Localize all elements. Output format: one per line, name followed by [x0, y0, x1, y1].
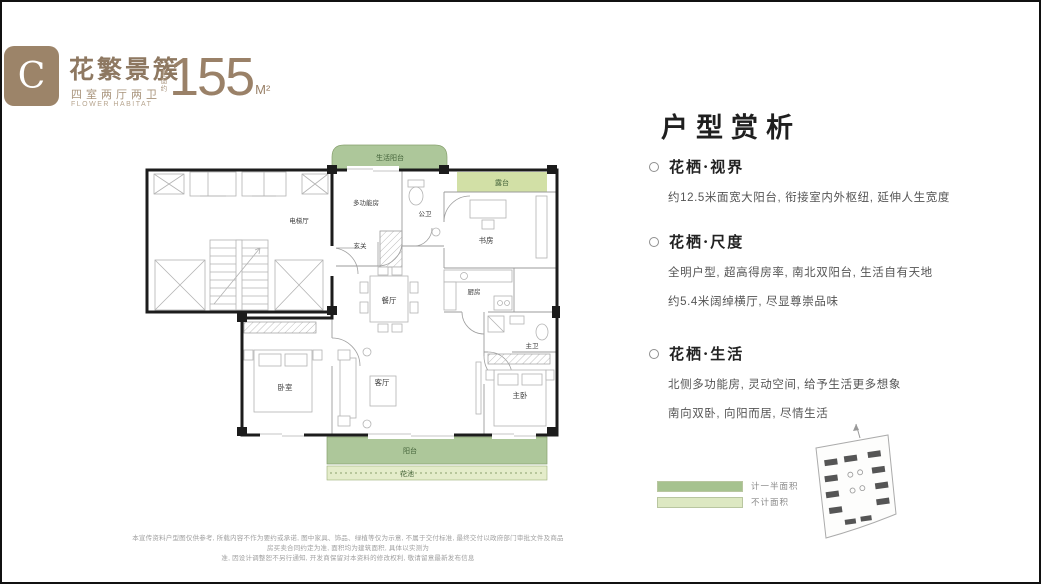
room-label-master-bedroom: 主卧: [513, 390, 528, 400]
room-label-foyer: 玄关: [354, 241, 368, 250]
unit-type-badge: C: [4, 46, 59, 106]
area-unit: M²: [255, 82, 270, 97]
area-prefix: 建面约: [157, 70, 167, 93]
poster-page: C 花繁景簇 四室两厅两卫 FLOWER HABITAT 建面约 155 M²: [0, 0, 1041, 584]
page-subtitle-en: FLOWER HABITAT: [71, 101, 152, 108]
room-label-study: 书房: [479, 235, 494, 245]
building-sitemap: [798, 422, 900, 542]
room-label-terrace: 露台: [495, 178, 509, 187]
page-subtitle: 四室两厅两卫: [71, 86, 161, 102]
legend-swatch-no-area: [657, 497, 743, 508]
room-label-dining: 餐厅: [382, 296, 397, 305]
south-balcony-area: [327, 437, 547, 480]
section-line: 约5.4米阔绰横厅, 尽显尊崇品味: [668, 293, 979, 309]
unit-type-letter: C: [18, 56, 46, 97]
section-line: 南向双卧, 向阳而居, 尽情生活: [668, 405, 979, 421]
analysis-section-scale: 花栖·尺度 全明户型, 超高得房率, 南北双阳台, 生活自有天地 约5.4米阔绰…: [649, 231, 979, 322]
section-line: 全明户型, 超高得房率, 南北双阳台, 生活自有天地: [668, 264, 979, 280]
legend-label: 不计面积: [751, 496, 789, 508]
analysis-title: 户型赏析: [661, 106, 801, 145]
section-title: 花栖·尺度: [669, 231, 744, 252]
legend-item-no-area: 不计面积: [657, 496, 799, 508]
analysis-section-vision: 花栖·视界 约12.5米面宽大阳台, 衔接室内外枢纽, 延伸人生宽度: [649, 156, 979, 218]
room-label-life-balcony: 生活阳台: [376, 153, 404, 162]
legend-label: 计一半面积: [751, 480, 799, 492]
bullet-icon: [649, 237, 659, 247]
elevator-icon: [275, 260, 323, 310]
section-title: 花栖·视界: [669, 156, 744, 177]
room-label-elevator-hall: 电梯厅: [289, 216, 309, 225]
disclaimer-line: 本宣传资料户型图仅供参考, 所载内容不作为要约或承诺, 图中家具、饰品、绿植等仅…: [132, 534, 564, 554]
floor-plan: 生活阳台 露台 多功能房 公卫 电梯厅 玄关 书房 厨房 餐厅 主卫 客厅 卧室…: [142, 136, 564, 488]
room-label-bedroom: 卧室: [278, 382, 293, 392]
elevator-icon: [155, 260, 205, 310]
area-figure: 建面约 155 M²: [157, 52, 270, 102]
analysis-section-life: 花栖·生活 北侧多功能房, 灵动空间, 给予生活更多想象 南向双卧, 向阳而居,…: [649, 343, 979, 434]
room-label-master-bath: 主卫: [526, 341, 540, 350]
north-arrow-icon: [853, 424, 860, 438]
area-legend: 计一半面积 不计面积: [657, 480, 799, 512]
disclaimer-text: 本宣传资料户型图仅供参考, 所载内容不作为要约或承诺, 图中家具、饰品、绿植等仅…: [132, 534, 564, 564]
bullet-icon: [649, 349, 659, 359]
area-value: 155: [169, 52, 253, 102]
room-label-multi-room: 多功能房: [353, 198, 379, 207]
disclaimer-line: 准, 因设计调整恕不另行通知, 开发商保留对本资料的修改权利, 敬请留意最新发布…: [132, 554, 564, 564]
bullet-icon: [649, 162, 659, 172]
room-label-flower-bed: 花池: [400, 469, 414, 478]
section-line: 北侧多功能房, 灵动空间, 给予生活更多想象: [668, 376, 979, 392]
section-line: 约12.5米面宽大阳台, 衔接室内外枢纽, 延伸人生宽度: [668, 189, 979, 205]
room-label-public-bath: 公卫: [419, 210, 433, 218]
room-label-kitchen: 厨房: [468, 287, 481, 296]
stairs-icon: [210, 240, 268, 310]
room-label-balcony: 阳台: [403, 446, 417, 455]
room-label-living: 客厅: [375, 377, 390, 387]
section-title: 花栖·生活: [669, 343, 744, 364]
legend-swatch-half-area: [657, 481, 743, 492]
legend-item-half-area: 计一半面积: [657, 480, 799, 492]
